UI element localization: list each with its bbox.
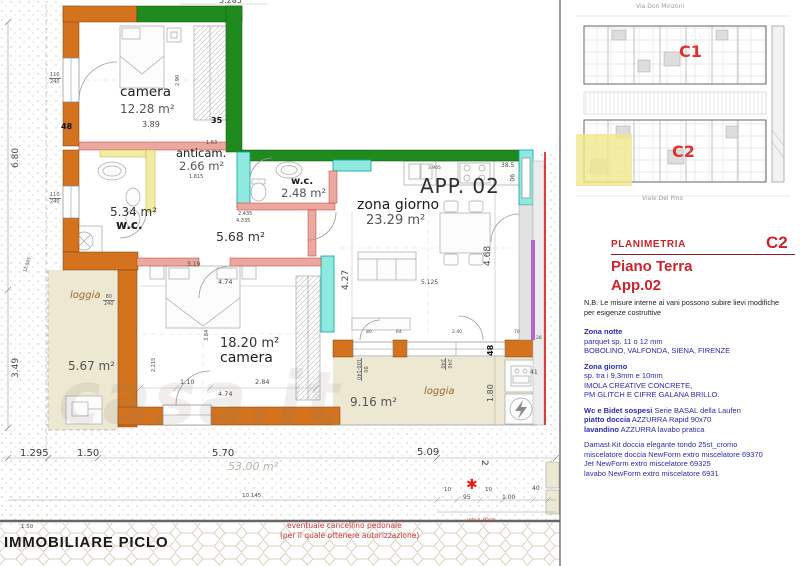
spec-line: Wc e Bidet sospesi Serie BASAL della Lau… <box>584 406 799 416</box>
dim-4335: 4.335 <box>236 219 250 224</box>
dim-427: 4.27 <box>342 270 351 290</box>
dim-3965: 3.965 <box>428 167 441 172</box>
spec-text: Serie BASAL della Laufen <box>652 406 741 415</box>
dim-70: 70 <box>514 331 520 336</box>
dim-48a: 48 <box>61 123 72 131</box>
room-name-camera-2: camera <box>220 351 273 365</box>
fraction-bottom: 240 <box>49 198 61 205</box>
spec-bold: piatto doccia <box>584 415 630 424</box>
spec-line: IMOLA CREATIVE CONCRETE, <box>584 381 799 391</box>
spec-line: sp. tra i 9,3mm e 10mm <box>584 371 799 381</box>
dim-90: 90 <box>508 174 514 182</box>
apartment-label: APP. 02 <box>420 176 500 196</box>
spec-line: PM GLITCH E CIFRE GALANA BRILLO. <box>584 390 799 400</box>
room-area-zona-giorno: 23.29 m² <box>366 214 425 227</box>
spec-line: piatto doccia AZZURRA Rapid 90x70 <box>584 415 799 425</box>
spec-line: Zona notte <box>584 327 799 337</box>
spec-text: IMOLA CREATIVE CONCRETE, <box>584 381 692 390</box>
gate-note-line2: (per il quale ottenere autorizzazione) <box>280 532 419 540</box>
window-size-fraction: 110 240 <box>49 72 61 85</box>
dim-5125: 5.125 <box>421 280 438 286</box>
fraction-top: 110 <box>49 72 61 78</box>
dim-10145: 10.145 <box>242 494 261 500</box>
fraction-bottom: 240 <box>439 358 446 370</box>
dim-35: 35 <box>211 117 222 125</box>
dim-474a: 4.74 <box>218 279 232 286</box>
spec-line: miscelatore doccia NewForm extro miscela… <box>584 450 799 460</box>
dim-10b: 10 <box>485 488 492 494</box>
dim-290: 2.90 <box>176 75 181 86</box>
nb-note-line1: N.B. Le misure interne ai vani possono s… <box>584 299 779 306</box>
dim-150b: 1.50 <box>21 525 33 531</box>
spec-bold: lavandino <box>584 425 619 434</box>
spec-text: PM GLITCH E CIFRE GALANA BRILLO. <box>584 390 719 399</box>
room-name-anticam: anticam. <box>176 148 226 160</box>
room-name-loggia-2: loggia <box>424 387 455 397</box>
spec-text: AZZURRA Rapid 90x70 <box>630 415 711 424</box>
dim-80: 80 <box>366 331 372 336</box>
dim-40: 40 <box>532 486 540 492</box>
dim-5285: 5.285 <box>219 0 242 5</box>
dim-389: 3.89 <box>142 121 160 129</box>
room-area-loggia-1: 5.67 m² <box>68 360 115 372</box>
spec-text: miscelatore doccia NewForm extro miscela… <box>584 450 763 459</box>
side-block <box>772 26 784 182</box>
room-area-anticam: 2.66 m² <box>179 161 224 173</box>
spec-line: Damast Kit doccia elegante tondo 25st_cr… <box>584 440 799 450</box>
dim-28: 28 <box>536 337 542 342</box>
room-area-loggia-2: 9.16 m² <box>350 396 397 408</box>
dim-10a: 10 <box>444 488 451 494</box>
unit-highlight <box>576 134 632 186</box>
section-label: PLANIMETRIA <box>611 240 686 250</box>
spec-bold: Zona giorno <box>584 362 627 371</box>
window-size-fraction: 240 240 <box>439 358 452 370</box>
spec-line: lavandino AZZURRA lavabo pratica <box>584 425 799 435</box>
spec-line: Jet NewForm extro miscelatore 69325 <box>584 459 799 469</box>
dim-2: 2 <box>479 460 488 466</box>
spec-text: Jet NewForm extro miscelatore 69325 <box>584 459 711 468</box>
fence-note: rete h. 95cm <box>467 519 496 524</box>
dim-180: 1.80 <box>487 384 495 402</box>
dim-284: 2.84 <box>255 379 269 386</box>
building-label-c2: C2 <box>672 144 695 160</box>
dim-150a: 1.50 <box>77 449 99 459</box>
building-c2 <box>576 120 766 186</box>
dim-240: 2.40 <box>452 331 462 336</box>
building-c1 <box>584 26 766 84</box>
section-underline <box>611 254 795 255</box>
dim-680: 6.80 <box>12 148 21 168</box>
room-name-camera-1: camera <box>120 86 171 100</box>
courtyard-parking <box>584 92 766 114</box>
fraction-bottom: 240 <box>49 78 61 85</box>
plan-title-line2: App.02 <box>611 278 661 293</box>
room-area-corridor: 5.68 m² <box>216 231 265 244</box>
spec-text: sp. tra i 9,3mm e 10mm <box>584 371 663 380</box>
street-name-bottom: Viale Del Pino <box>642 196 683 202</box>
nb-note-line2: per esigenze costruttive <box>584 309 661 316</box>
total-area-label: 53.00 m² <box>228 461 278 472</box>
building-label-c1: C1 <box>679 44 702 60</box>
street-name-top: Via Don Minzoni <box>636 4 684 10</box>
room-area-wc-small: 2.48 m² <box>281 188 326 200</box>
dim-110: 1.10 <box>180 379 194 386</box>
room-name-loggia-1: loggia <box>70 291 101 301</box>
spec-text: BOBOLINO, VALFONDA, SIENA, FIRENZE <box>584 346 730 355</box>
dim-474b: 4.74 <box>218 391 232 398</box>
fraction-bottom: 240 <box>103 300 115 307</box>
room-name-zona-giorno: zona giorno <box>357 198 439 212</box>
spec-line: parquet sp. 11 o 12 mm <box>584 337 799 347</box>
window-size-fraction: 80 240 <box>103 294 115 307</box>
dim-385: 38.5 <box>501 163 514 169</box>
dim-2215: 2.215 <box>152 358 157 372</box>
dim-468: 4.68 <box>484 246 493 266</box>
room-area-wc-big: 5.34 m² <box>110 206 157 218</box>
fraction-top: 80 <box>362 358 368 381</box>
spec-text: AZZURRA lavabo pratica <box>619 425 704 434</box>
fraction-top: 110 <box>49 192 61 198</box>
dim-41: 41 <box>530 370 538 376</box>
dim-509: 5.09 <box>417 448 439 458</box>
spec-line: lavabo NewForm extro miscelatore 6931 <box>584 469 799 479</box>
dim-1815: 1.815 <box>189 175 203 180</box>
room-area-camera-1: 12.28 m² <box>120 103 175 115</box>
gate-note-line1: eventuale cancellino pedonale <box>287 522 402 530</box>
room-area-camera-2: 18.20 m² <box>220 337 279 350</box>
spec-line: BOBOLINO, VALFONDA, SIENA, FIRENZE <box>584 346 799 356</box>
window-size-fraction: 110 240 <box>49 192 61 205</box>
room-name-wc-big: w.c. <box>116 219 143 231</box>
dim-570: 5.70 <box>212 449 234 459</box>
spec-bold: Wc e Bidet sospesi <box>584 406 652 415</box>
dim-2435: 2.435 <box>238 212 252 217</box>
dim-384: 3.84 <box>205 330 210 341</box>
plan-title-line1: Piano Terra <box>611 259 692 274</box>
dim-48b: 48 <box>487 345 495 356</box>
dim-1295: 1.295 <box>20 449 49 459</box>
fraction-top: 240 <box>446 358 452 370</box>
spec-text: Damast Kit doccia elegante tondo 25st_cr… <box>584 440 737 449</box>
dim-64: 64 <box>396 331 402 336</box>
spec-line: Zona giorno <box>584 362 799 372</box>
gate-marker-star: ✱ <box>466 478 478 492</box>
finishes-spec-list: Zona notte parquet sp. 11 o 12 mm BOBOLI… <box>584 327 799 478</box>
siteplan-drawing <box>576 10 796 206</box>
dim-163: 1.63 <box>206 141 217 146</box>
window-size-fraction: 80 100-140 <box>355 358 368 381</box>
spec-text: parquet sp. 11 o 12 mm <box>584 337 663 346</box>
floorplan-sheet: casa.it camera 12.28 m² anticam. 2.66 m²… <box>0 0 800 566</box>
spec-text: lavabo NewForm extro miscelatore 6931 <box>584 469 719 478</box>
plan-code: C2 <box>766 234 788 251</box>
dim-95: 95 <box>463 495 471 501</box>
dim-100: 1.00 <box>502 495 515 501</box>
dim-319: 3.19 <box>187 262 200 268</box>
fraction-bottom: 100-140 <box>355 358 362 381</box>
agency-name: IMMOBILIARE PICLO <box>4 534 168 551</box>
spec-bold: Zona notte <box>584 327 622 336</box>
dim-349: 3.49 <box>12 358 21 378</box>
